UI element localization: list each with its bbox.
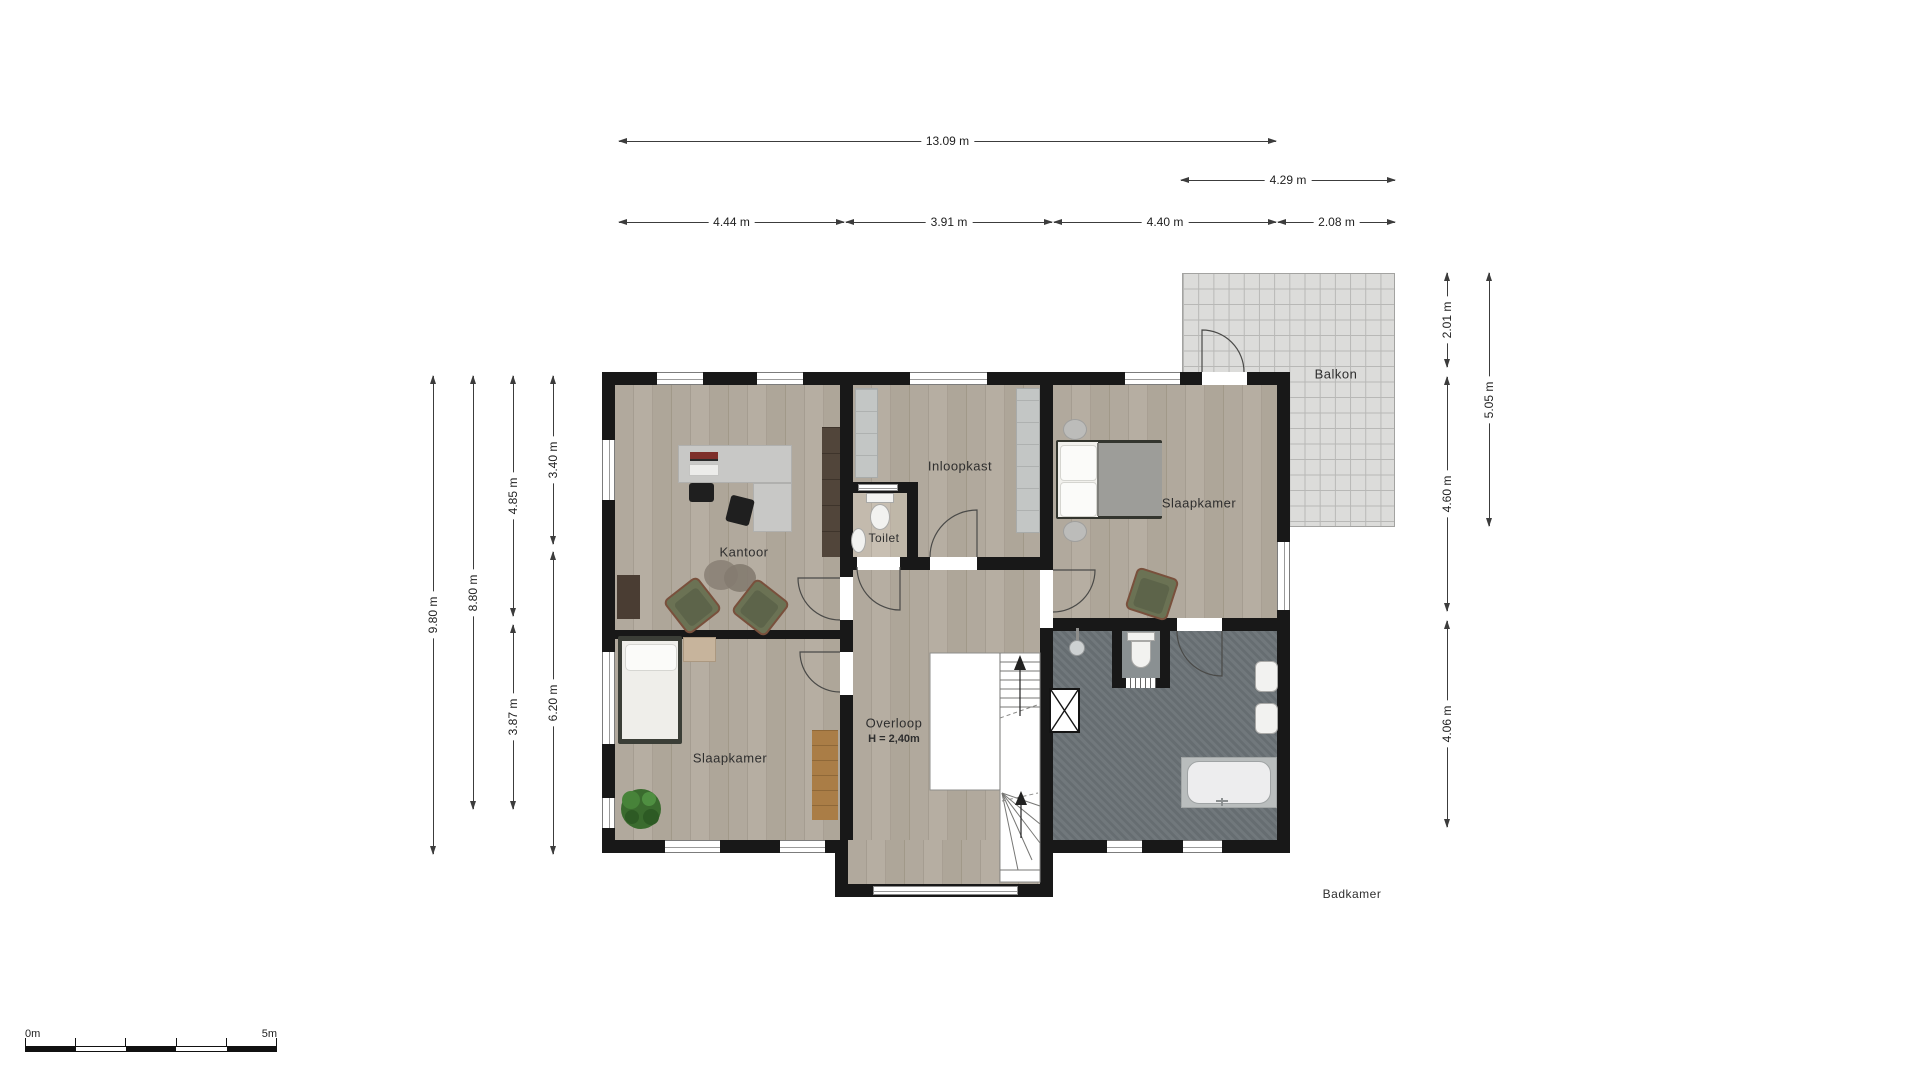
double-bed-duvet [1097,443,1162,516]
dim-bedroom-left-height: 3.87 m [506,624,520,810]
wc-tank [1127,632,1155,641]
window-left-1 [602,440,615,500]
wardrobe-left [855,388,878,478]
single-bed-pillow [625,644,677,671]
window-left-2 [602,652,615,744]
door-opening-bedroom-right [1040,570,1053,618]
double-bed-pillow-1 [1060,445,1097,481]
window-toilet [858,484,898,491]
dim-segment-2: 3.91 m [845,215,1053,229]
door-opening-kantoor [840,577,853,620]
office-chair-1 [689,483,714,502]
dim-left-inner-height: 8.80 m [466,375,480,810]
toilet-sink [851,528,866,553]
overloop-ceiling-height: H = 2,40m [868,733,920,745]
wc-bowl [1131,641,1151,668]
window-bottom-4 [1183,840,1222,853]
door-opening-toilet [857,557,900,570]
dim-kantoor-height: 4.85 m [506,375,520,617]
room-label-kantoor: Kantoor [719,545,768,560]
window-bottom-1 [665,840,720,853]
floor-plan-canvas: Balkon [0,0,1920,1080]
nightstand-top [1063,419,1087,440]
window-top-3 [910,372,987,385]
dim-segment-1: 4.44 m [618,215,845,229]
dim-left-top-section: 3.40 m [546,375,560,545]
scale-bar: 0m 5m [25,1028,277,1056]
window-top-1 [657,372,703,385]
kantoor-sideboard [617,575,640,619]
door-opening-inloopkast [930,557,977,570]
wall-right [1277,372,1290,853]
door-opening-bathroom [1177,618,1222,631]
wc-compartment-door [1126,678,1156,688]
wood-mat [812,730,838,820]
wall-bedroom-bathroom [1053,618,1290,631]
dim-bathroom-height: 4.06 m [1440,620,1454,828]
wall-toilet-right [907,482,918,568]
dim-balcony-width: 4.29 m [1180,173,1396,187]
scale-bar-start-label: 0m [25,1028,40,1040]
balcony-door-opening [1202,372,1247,385]
window-top-2 [757,372,803,385]
bathtub [1187,761,1271,804]
kantoor-cabinet [822,427,840,557]
window-top-4 [1125,372,1180,385]
window-bottom-3 [1107,840,1142,853]
door-opening-bedroom-left [840,652,853,695]
shaft-box [1049,688,1080,733]
room-label-inloopkast: Inloopkast [928,459,992,474]
room-label-balkon: Balkon [1315,367,1358,382]
room-label-overloop: Overloop [866,716,923,731]
dim-segment-4: 2.08 m [1277,215,1396,229]
window-stair-extension [873,886,1018,895]
bathroom-sink-1 [1255,661,1278,692]
wall-overloop-bathroom [1040,628,1053,840]
office-desk-return [753,483,792,532]
shower-head [1069,640,1085,656]
dim-bedroom-right-height: 4.60 m [1440,376,1454,612]
dim-balcony-full-height: 5.05 m [1482,272,1496,527]
dim-balcony-top-height: 2.01 m [1440,272,1454,368]
window-bottom-2 [780,840,825,853]
dim-total-width: 13.09 m [618,134,1277,148]
wardrobe-right [1016,388,1040,533]
room-label-slaapkamer-bottom: Slaapkamer [693,751,767,766]
scale-bar-end-label: 5m [262,1028,277,1040]
room-label-slaapkamer-top: Slaapkamer [1162,496,1236,511]
desk-papers [689,464,719,476]
scale-bar-line [25,1046,277,1052]
dim-left-bottom-section: 6.20 m [546,551,560,855]
wall-bottom-right [1040,840,1290,853]
room-label-toilet: Toilet [868,531,899,545]
nightstand-bottom [1063,521,1087,542]
desk-laptop [690,452,718,461]
double-bed-pillow-2 [1060,482,1097,517]
toilet-tank [866,493,894,503]
overloop-floor [853,570,1040,840]
window-left-3 [602,798,615,828]
dim-segment-3: 4.40 m [1053,215,1277,229]
room-label-badkamer: Badkamer [1323,887,1382,901]
stair-extension-floor [848,840,1040,884]
bedside-bench [683,637,716,662]
window-right-1 [1277,542,1290,610]
toilet-bowl [870,504,890,530]
dim-left-total-height: 9.80 m [426,375,440,855]
bathroom-sink-2 [1255,703,1278,734]
